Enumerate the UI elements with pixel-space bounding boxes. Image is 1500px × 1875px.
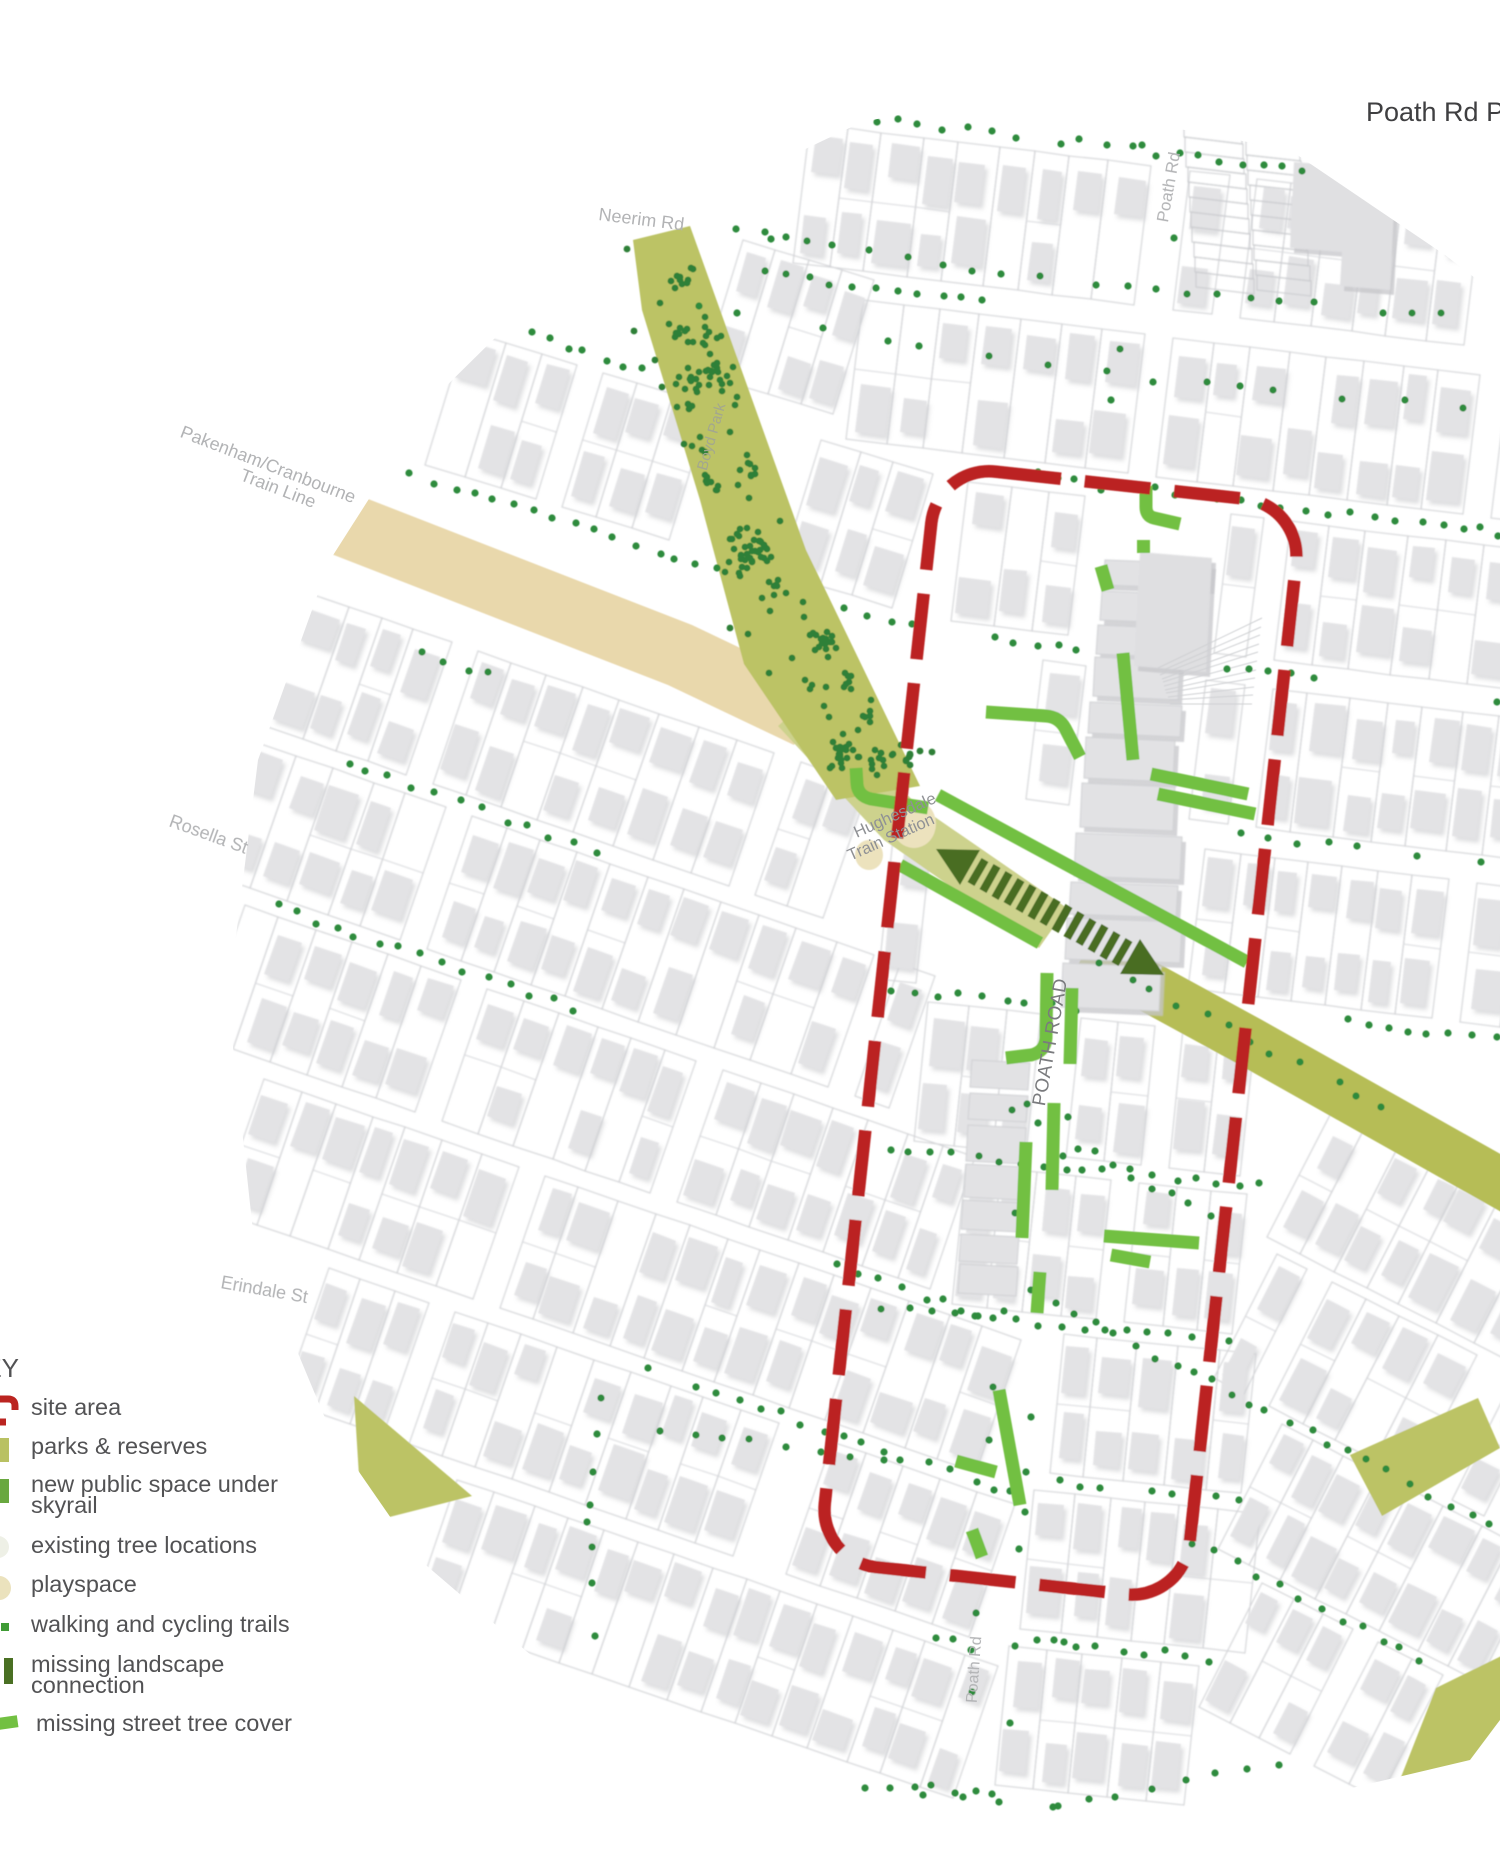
svg-text:site area: site area xyxy=(31,1394,122,1420)
svg-text:skyrail: skyrail xyxy=(31,1492,98,1518)
svg-text:playspace: playspace xyxy=(31,1571,137,1597)
svg-text:missing street tree cover: missing street tree cover xyxy=(36,1710,292,1736)
svg-text:KEY: KEY xyxy=(0,1353,19,1383)
svg-text:parks & reserves: parks & reserves xyxy=(31,1433,207,1459)
svg-text:connection: connection xyxy=(31,1672,145,1698)
svg-text:walking and cycling trails: walking and cycling trails xyxy=(30,1611,290,1637)
svg-text:Poath Rd Precinct: Poath Rd Precinct xyxy=(1366,97,1500,127)
svg-text:existing tree locations: existing tree locations xyxy=(31,1532,257,1558)
